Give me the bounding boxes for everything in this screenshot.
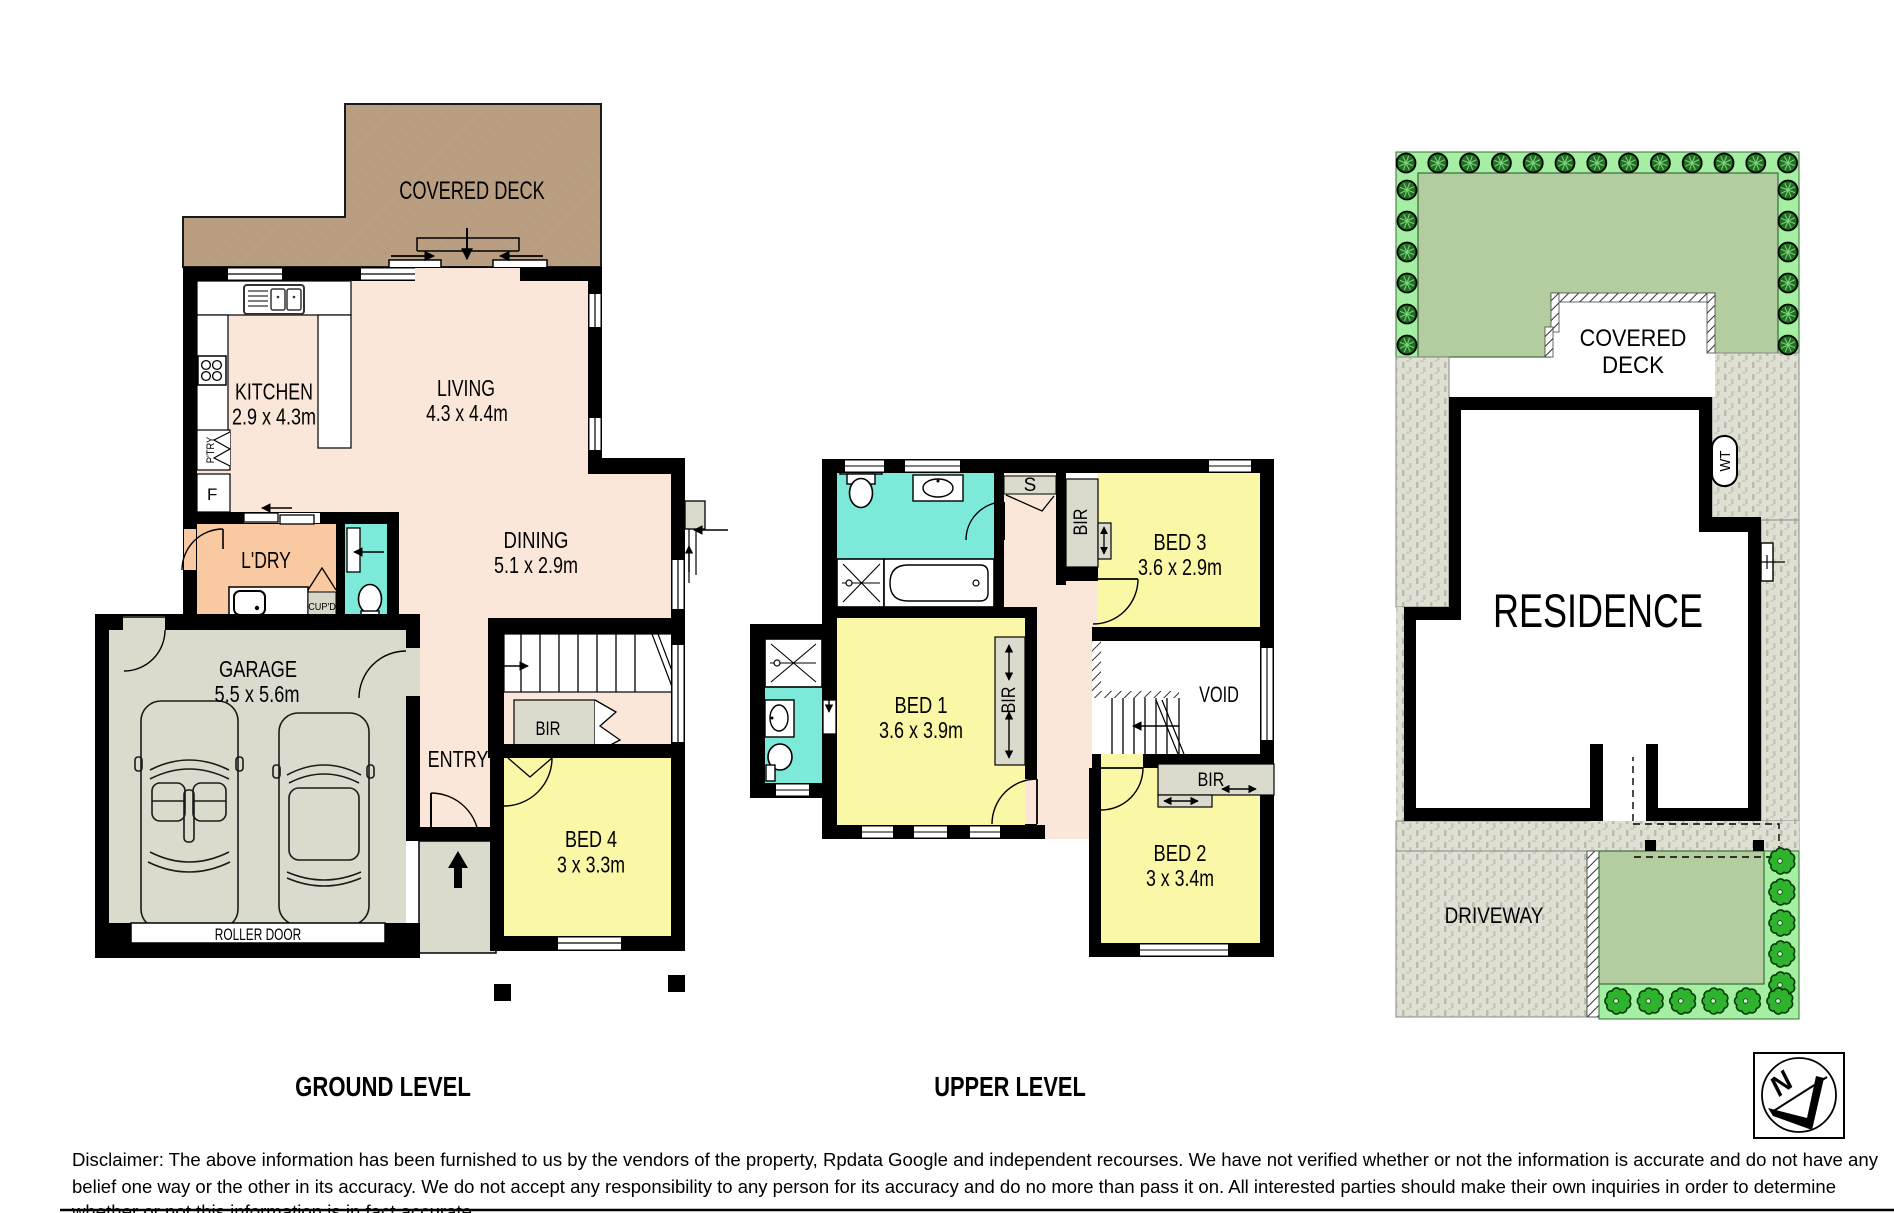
svg-text:P'TRY: P'TRY bbox=[205, 437, 217, 464]
svg-text:BED 3: BED 3 bbox=[1154, 530, 1207, 556]
svg-text:3 x 3.3m: 3 x 3.3m bbox=[557, 852, 625, 878]
svg-text:GARAGE: GARAGE bbox=[219, 657, 297, 683]
svg-text:BED 4: BED 4 bbox=[565, 827, 617, 853]
svg-text:BED 1: BED 1 bbox=[895, 693, 948, 719]
svg-text:belief one way or the other in: belief one way or the other in its accur… bbox=[72, 1176, 1836, 1197]
svg-text:ENTRY: ENTRY bbox=[428, 747, 489, 773]
svg-text:DECK: DECK bbox=[1602, 351, 1664, 378]
svg-text:COVERED DECK: COVERED DECK bbox=[399, 176, 545, 205]
svg-text:L'DRY: L'DRY bbox=[241, 548, 291, 574]
svg-text:BIR: BIR bbox=[998, 686, 1020, 713]
svg-text:3.6 x 3.9m: 3.6 x 3.9m bbox=[879, 718, 963, 744]
svg-text:BIR: BIR bbox=[535, 718, 560, 739]
svg-text:BIR: BIR bbox=[1070, 508, 1092, 535]
svg-text:5.5 x 5.6m: 5.5 x 5.6m bbox=[214, 682, 299, 708]
svg-text:BIR: BIR bbox=[1198, 769, 1225, 791]
svg-text:RESIDENCE: RESIDENCE bbox=[1493, 584, 1703, 637]
svg-text:2.9 x 4.3m: 2.9 x 4.3m bbox=[232, 404, 316, 430]
svg-text:LIVING: LIVING bbox=[437, 376, 495, 402]
svg-text:ROLLER DOOR: ROLLER DOOR bbox=[215, 926, 302, 945]
svg-text:3 x 3.4m: 3 x 3.4m bbox=[1146, 866, 1214, 892]
svg-text:4.3 x 4.4m: 4.3 x 4.4m bbox=[426, 401, 508, 427]
svg-text:CUP'D: CUP'D bbox=[308, 601, 336, 613]
svg-text:3.6 x 2.9m: 3.6 x 2.9m bbox=[1138, 555, 1222, 581]
svg-text:WT: WT bbox=[1717, 450, 1734, 471]
svg-text:5.1 x 2.9m: 5.1 x 2.9m bbox=[494, 553, 578, 579]
svg-text:Disclaimer: The above informat: Disclaimer: The above information has be… bbox=[72, 1149, 1879, 1170]
svg-text:DRIVEWAY: DRIVEWAY bbox=[1445, 904, 1544, 929]
svg-text:COVERED: COVERED bbox=[1580, 324, 1687, 351]
svg-text:KITCHEN: KITCHEN bbox=[235, 379, 313, 405]
svg-text:GROUND LEVEL: GROUND LEVEL bbox=[295, 1072, 471, 1103]
svg-text:VOID: VOID bbox=[1199, 683, 1239, 708]
svg-text:DINING: DINING bbox=[504, 528, 569, 554]
svg-text:BED 2: BED 2 bbox=[1154, 841, 1207, 867]
svg-text:S: S bbox=[1024, 475, 1037, 496]
svg-text:UPPER LEVEL: UPPER LEVEL bbox=[934, 1071, 1086, 1102]
svg-text:F: F bbox=[207, 485, 217, 504]
